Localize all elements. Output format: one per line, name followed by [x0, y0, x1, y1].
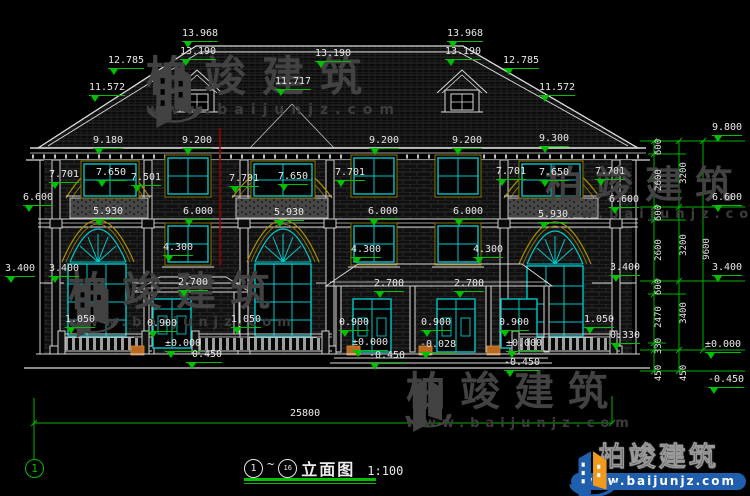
level-label: 9.180	[93, 136, 123, 149]
level-label: 6.000	[453, 207, 483, 220]
level-label: 1.050	[65, 315, 95, 328]
level-label: -0.028	[420, 340, 456, 353]
level-label: 3.400	[712, 263, 742, 276]
chain-dimension-label: 3200	[679, 162, 689, 184]
chain-dimension-label: 2600	[654, 239, 664, 261]
level-label: 13.190	[180, 47, 216, 60]
title-scale: 1:100	[367, 464, 403, 478]
level-label: 5.930	[538, 210, 568, 223]
level-label: 7.650	[96, 168, 126, 181]
axis-bubble: 1	[25, 459, 44, 478]
chain-dimension-label: 600	[654, 205, 664, 221]
level-label: -0.450	[708, 375, 744, 388]
level-label: ±0.000	[705, 340, 741, 353]
level-label: 3.400	[5, 264, 35, 277]
level-label: 6.000	[183, 207, 213, 220]
chain-dimension-label: 2470	[654, 306, 664, 328]
level-label: 7.501	[131, 173, 161, 186]
level-label: 3.400	[610, 263, 640, 276]
level-label: 9.200	[452, 136, 482, 149]
level-label: 9.200	[369, 136, 399, 149]
level-label: 7.701	[496, 167, 526, 180]
title-text: 立面图	[301, 456, 355, 480]
title-axis-start: 1	[244, 459, 263, 478]
ground-steps	[24, 354, 650, 368]
title-axis-end: 16	[278, 459, 297, 478]
chain-dimension-label: 3200	[679, 234, 689, 256]
level-label: 7.701	[229, 174, 259, 187]
eave-cornice	[26, 148, 650, 160]
level-label: 6.600	[23, 193, 53, 206]
level-label: 12.785	[503, 56, 539, 69]
overall-dimension-label: 25800	[290, 408, 320, 419]
level-label: 6.000	[368, 207, 398, 220]
chain-dimension-label: 450	[679, 365, 689, 381]
level-label: 11.572	[539, 83, 575, 96]
title-underline-thin	[244, 483, 376, 484]
level-label: 5.930	[93, 207, 123, 220]
level-label: 12.785	[108, 56, 144, 69]
level-label: 2.700	[178, 278, 208, 291]
level-label: 0.900	[147, 319, 177, 332]
level-label: 0.900	[499, 318, 529, 331]
level-label: ±0.000	[506, 339, 542, 352]
level-label: 11.717	[275, 77, 311, 90]
axis-bubble-label: 1	[31, 462, 38, 475]
level-label: 7.650	[278, 172, 308, 185]
level-label: 1.050	[231, 315, 261, 328]
level-label: 4.300	[473, 245, 503, 258]
level-label: 1.050	[584, 315, 614, 328]
level-label: 13.190	[315, 49, 351, 62]
level-label: 5.930	[274, 208, 304, 221]
level-label: 7.701	[595, 167, 625, 180]
title-underline	[244, 478, 376, 481]
level-label: 9.300	[539, 134, 569, 147]
level-label: 7.701	[335, 168, 365, 181]
level-label: 6.600	[609, 195, 639, 208]
overall-dimension	[31, 396, 615, 459]
level-label: 0.900	[421, 318, 451, 331]
level-label: -0.450	[186, 350, 222, 363]
level-label: 3.400	[49, 264, 79, 277]
level-label: 6.600	[712, 193, 742, 206]
level-label: 7.650	[539, 168, 569, 181]
level-label: 9.200	[182, 136, 212, 149]
brand-logo: 柏竣建筑 www.baijunjz.com	[565, 444, 746, 490]
chain-dimension-label: 600	[654, 139, 664, 155]
level-label: 2.700	[454, 279, 484, 292]
level-label: 13.190	[445, 47, 481, 60]
level-label: -0.450	[504, 358, 540, 371]
level-label: 7.701	[49, 170, 79, 183]
chain-dimension-label: 2600	[654, 169, 664, 191]
chain-dimension-label: 330	[654, 338, 664, 354]
title-tilde: ~	[267, 457, 274, 471]
level-label: 0.330	[610, 331, 640, 344]
cad-canvas: 柏竣建筑 www.baijunjz.com 柏竣建筑 www.baijunjz.…	[0, 0, 750, 496]
chain-dimension-label: 3400	[679, 302, 689, 324]
level-label: -0.450	[369, 351, 405, 364]
level-label: 4.300	[163, 243, 193, 256]
level-label: 2.700	[374, 279, 404, 292]
level-label: 9.800	[712, 123, 742, 136]
level-label: 4.300	[351, 245, 381, 258]
level-label: 13.968	[182, 29, 218, 42]
chain-dimension-label: 9600	[702, 238, 712, 260]
level-label: 13.968	[447, 29, 483, 42]
chain-dimension-label: 450	[654, 365, 664, 381]
level-label: 0.900	[339, 318, 369, 331]
level-label: 11.572	[89, 83, 125, 96]
chain-dimension-label: 600	[654, 279, 664, 295]
drawing-title: 1 ~ 16 立面图 1:100	[244, 456, 403, 480]
